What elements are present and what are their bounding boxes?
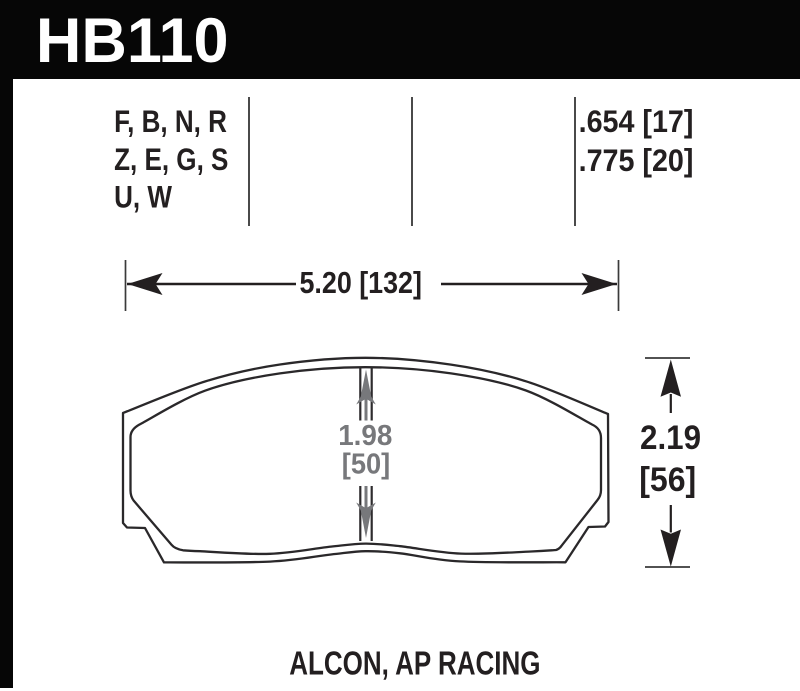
svg-text:F, B, N, R: F, B, N, R	[114, 105, 227, 140]
svg-text:.775 [20]: .775 [20]	[579, 144, 694, 178]
svg-text:5.20 [132]: 5.20 [132]	[300, 266, 422, 300]
svg-text:U, W: U, W	[114, 180, 173, 215]
svg-text:.654 [17]: .654 [17]	[579, 105, 694, 139]
svg-text:[50]: [50]	[342, 448, 390, 480]
svg-text:ALCON, AP RACING: ALCON, AP RACING	[289, 645, 540, 682]
svg-text:2.19: 2.19	[640, 418, 701, 456]
svg-text:[56]: [56]	[639, 461, 696, 499]
svg-text:HB110: HB110	[36, 6, 229, 76]
svg-text:Z, E, G, S: Z, E, G, S	[114, 143, 228, 178]
